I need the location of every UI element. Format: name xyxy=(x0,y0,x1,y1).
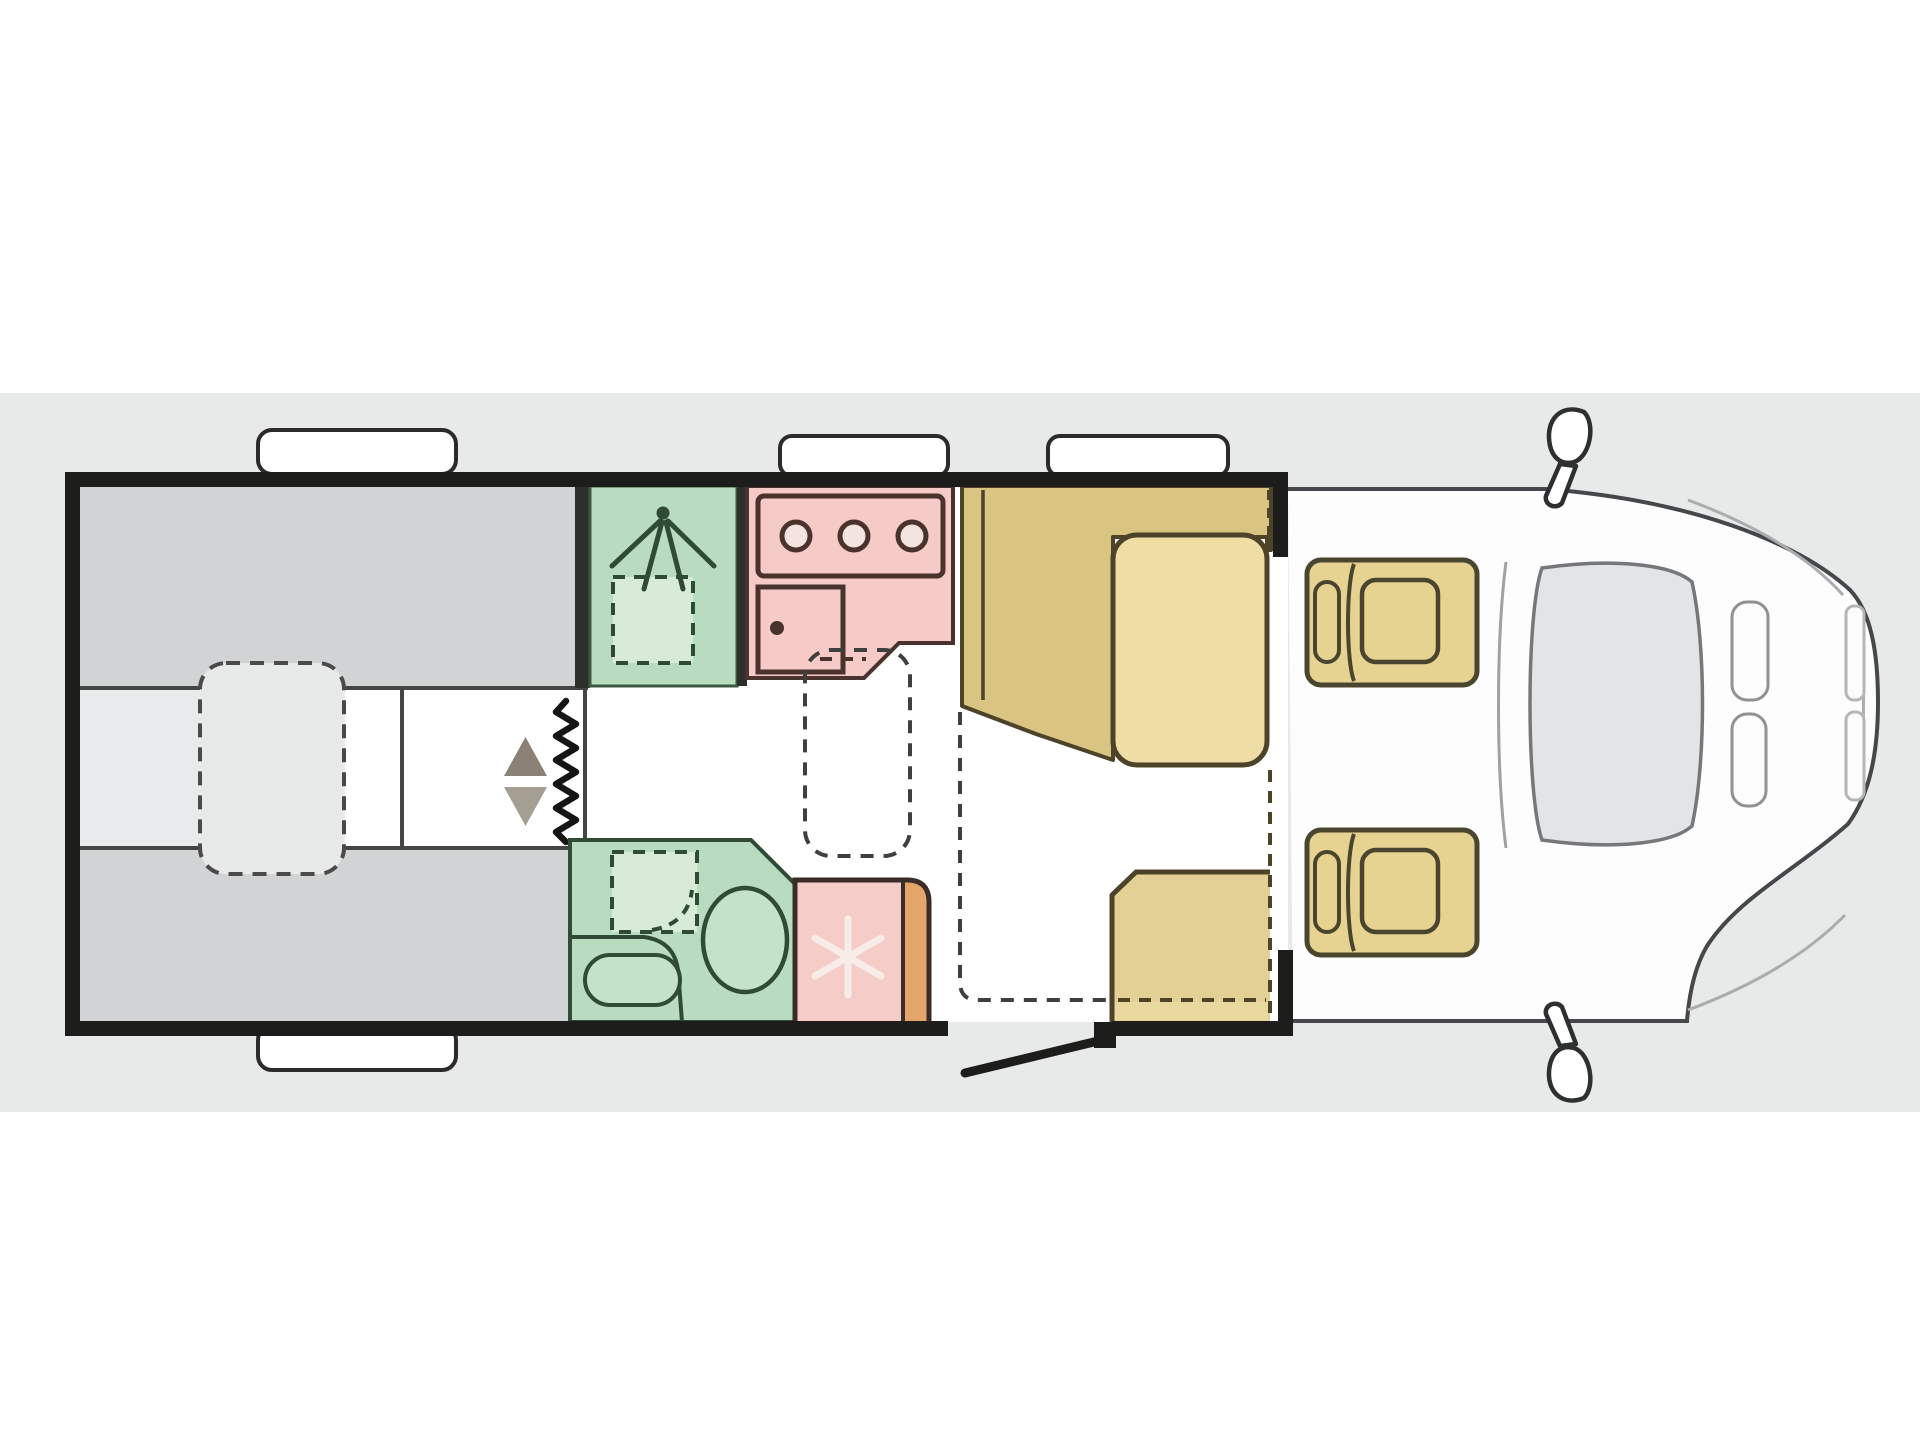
seat-armrest xyxy=(1315,852,1339,932)
faucet-dot-icon xyxy=(770,621,784,635)
fridge xyxy=(795,880,929,1032)
windshield xyxy=(1530,563,1703,845)
bathroom-shower-tray-dashed xyxy=(612,852,697,932)
driver-swivel-seat xyxy=(1307,560,1477,685)
headlight-top-icon xyxy=(1732,602,1768,700)
wall-top xyxy=(65,472,1288,487)
roof-vent-front-icon xyxy=(1048,436,1228,476)
dinette-l-bench xyxy=(962,486,1271,765)
shower-room xyxy=(590,486,737,686)
wash-basin xyxy=(585,955,680,1005)
seat-cushion xyxy=(1362,850,1438,932)
fridge-door-strip xyxy=(903,880,929,1032)
bed-top xyxy=(79,486,577,688)
wall-bottom-left xyxy=(65,1021,948,1036)
roof-vent-mid-icon xyxy=(780,436,948,476)
seat-cushion xyxy=(1362,580,1438,662)
seat-armrest xyxy=(1315,582,1339,662)
roof-vent-rear-top-icon xyxy=(258,430,456,474)
dinette-seat-cushion xyxy=(1113,535,1267,765)
bumper-light-bottom-icon xyxy=(1846,712,1864,800)
bathroom xyxy=(570,840,795,1022)
removable-table-dashed xyxy=(200,663,344,874)
wall-bed-shower xyxy=(575,486,590,688)
bumper-light-top-icon xyxy=(1846,606,1864,700)
burner-2-icon xyxy=(840,522,868,550)
headlight-bottom-icon xyxy=(1732,714,1766,806)
wall-bottom-right xyxy=(1112,1021,1293,1036)
wall-stub-top-right xyxy=(1273,472,1288,557)
front-bench-step xyxy=(1114,1002,1268,1020)
passenger-swivel-seat xyxy=(1307,830,1477,955)
floorplan-image xyxy=(0,0,1920,1440)
burner-3-icon xyxy=(898,522,926,550)
wall-stub-bottom-right xyxy=(1278,950,1293,1036)
floorplan-svg xyxy=(0,0,1920,1440)
wall-left xyxy=(65,472,80,1036)
toilet xyxy=(703,888,787,992)
burner-1-icon xyxy=(782,522,810,550)
